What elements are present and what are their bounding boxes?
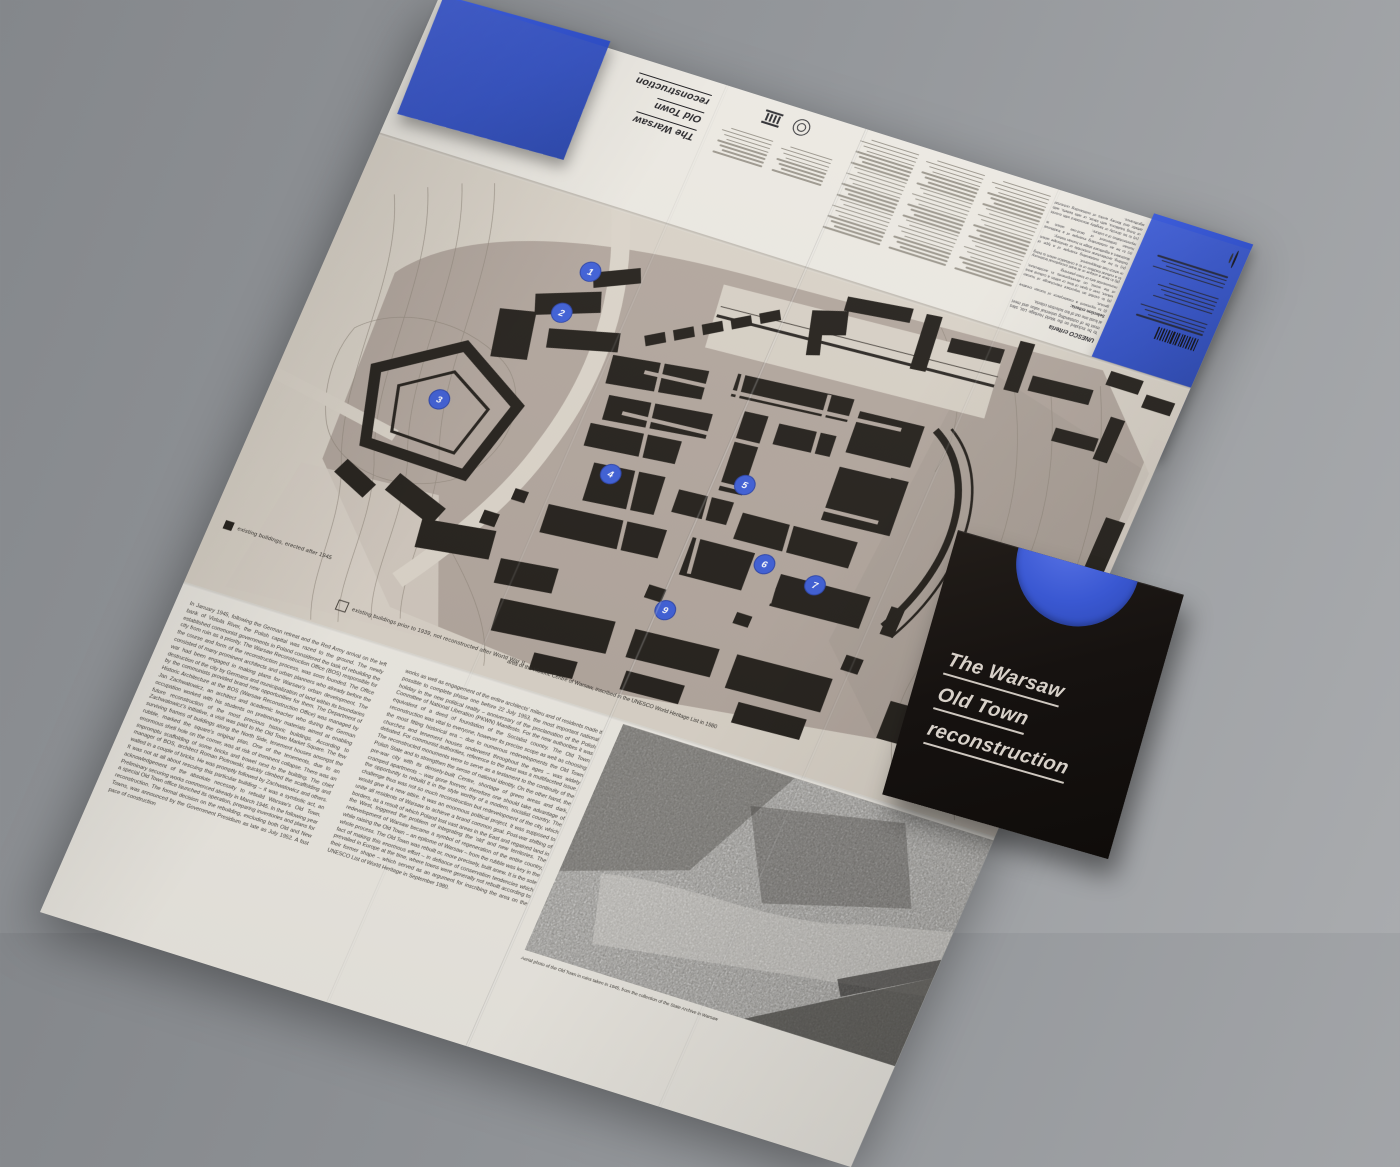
publisher-logo-icon — [1230, 250, 1240, 268]
unesco-emblem-icon — [760, 109, 785, 130]
imprint-text-column — [711, 123, 774, 169]
imprint-text-column — [770, 142, 833, 188]
back-cover-title: The Warsaw Old Town reconstruction — [600, 66, 712, 142]
copyright-ring-icon — [790, 118, 813, 139]
sleeve-title: The Warsaw Old Town reconstruction — [921, 649, 1091, 793]
sleeve-title-line-3: reconstruction — [923, 718, 1072, 784]
photo-of-warsaw-map-publication: { "publication": { "sleeve": { "title_li… — [0, 0, 1400, 933]
blue-cover-panel-left — [397, 0, 610, 160]
